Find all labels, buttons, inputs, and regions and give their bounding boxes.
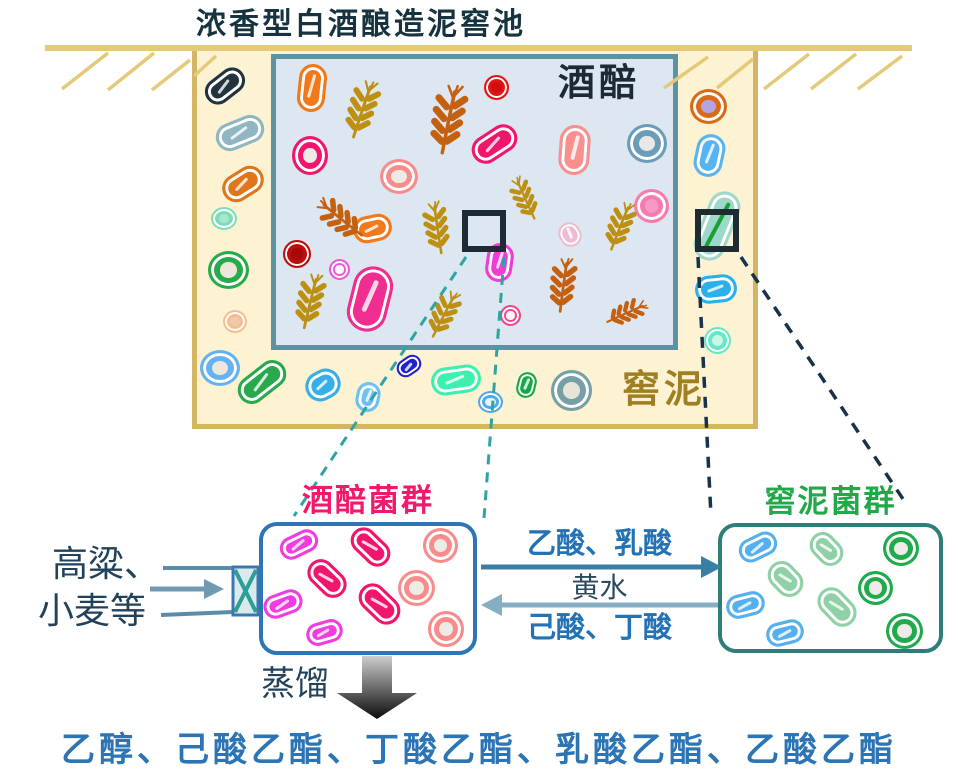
raw-material-label: 高粱、小麦等: [38, 541, 160, 635]
input-arrow: [204, 579, 224, 599]
coccus-bacterium-icon: [500, 305, 521, 326]
grain-microbes-label: 酒醅菌群: [259, 483, 477, 519]
coccus-bacterium-icon: [200, 350, 240, 386]
page-title: 浓香型白酒酿造泥窖池: [196, 8, 526, 43]
distillation-label: 蒸馏: [261, 665, 329, 704]
coccus-bacterium-icon: [292, 136, 328, 175]
coccus-bacterium-icon: [398, 570, 435, 606]
coccus-bacterium-icon: [223, 310, 247, 333]
diagram-canvas: 浓香型白酒酿造泥窖池 酒醅 窖泥 酒醅菌群 窖泥菌群 乙酸、乳酸 黄水 己酸、丁…: [0, 0, 958, 784]
coccus-bacterium-icon: [704, 327, 731, 354]
coccus-bacterium-icon: [283, 240, 311, 268]
coccus-bacterium-icon: [484, 75, 509, 100]
raw-material-line2: 小麦等: [38, 590, 146, 631]
coccus-bacterium-icon: [690, 89, 727, 124]
zoom-box-mud: [695, 209, 739, 252]
coccus-bacterium-icon: [886, 613, 923, 649]
mud-microbes-label: 窖泥菌群: [718, 484, 943, 520]
mud-layer-label: 窖泥: [622, 369, 706, 413]
flow-to-right-label: 乙酸、乳酸: [481, 528, 718, 561]
inlet-valve-icon: [233, 567, 258, 615]
input-lines: [150, 568, 233, 615]
coccus-bacterium-icon: [423, 528, 458, 563]
coccus-bacterium-icon: [428, 611, 464, 647]
coccus-bacterium-icon: [329, 259, 350, 280]
coccus-bacterium-icon: [478, 391, 503, 413]
coccus-bacterium-icon: [211, 207, 237, 230]
distillation-arrow: [337, 656, 417, 719]
grain-layer-label: 酒醅: [558, 62, 640, 105]
zoom-box-grain: [462, 210, 506, 252]
coccus-bacterium-icon: [883, 531, 919, 566]
rod-bacterium-icon: [557, 124, 591, 176]
products-label: 乙醇、己酸乙酯、丁酸乙酯、乳酸乙酯、乙酸乙酯: [0, 731, 958, 770]
coccus-bacterium-icon: [380, 159, 418, 194]
huangshui-label: 黄水: [481, 572, 718, 604]
raw-material-line1: 高粱、: [52, 543, 160, 584]
coccus-bacterium-icon: [627, 124, 667, 163]
coccus-bacterium-icon: [208, 251, 249, 289]
coccus-bacterium-icon: [634, 189, 669, 223]
coccus-bacterium-icon: [858, 571, 893, 605]
flow-to-left-label: 己酸、丁酸: [481, 612, 718, 645]
coccus-bacterium-icon: [551, 370, 592, 411]
